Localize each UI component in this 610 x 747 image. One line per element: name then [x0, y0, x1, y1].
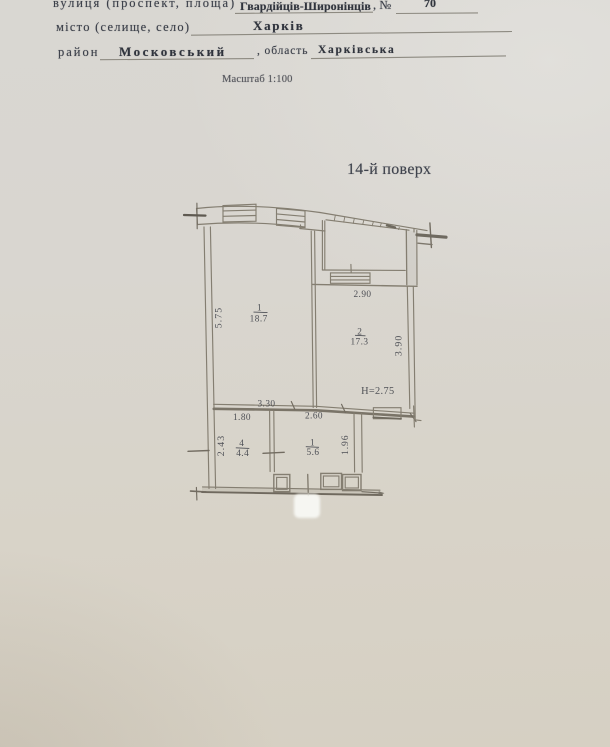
svg-text:3.30: 3.30: [257, 399, 275, 409]
svg-text:1.80: 1.80: [233, 413, 251, 423]
svg-text:5.75: 5.75: [213, 307, 224, 329]
svg-text:3.90: 3.90: [393, 335, 404, 357]
svg-text:4.4: 4.4: [236, 449, 249, 459]
svg-text:17.3: 17.3: [350, 338, 368, 348]
svg-text:2.43: 2.43: [216, 435, 227, 457]
svg-text:2.60: 2.60: [305, 412, 323, 422]
svg-text:5.6: 5.6: [307, 448, 320, 458]
svg-text:18.7: 18.7: [250, 315, 268, 325]
svg-text:H=2.75: H=2.75: [361, 386, 394, 397]
svg-text:1.96: 1.96: [340, 435, 351, 455]
svg-text:2.90: 2.90: [353, 290, 371, 300]
